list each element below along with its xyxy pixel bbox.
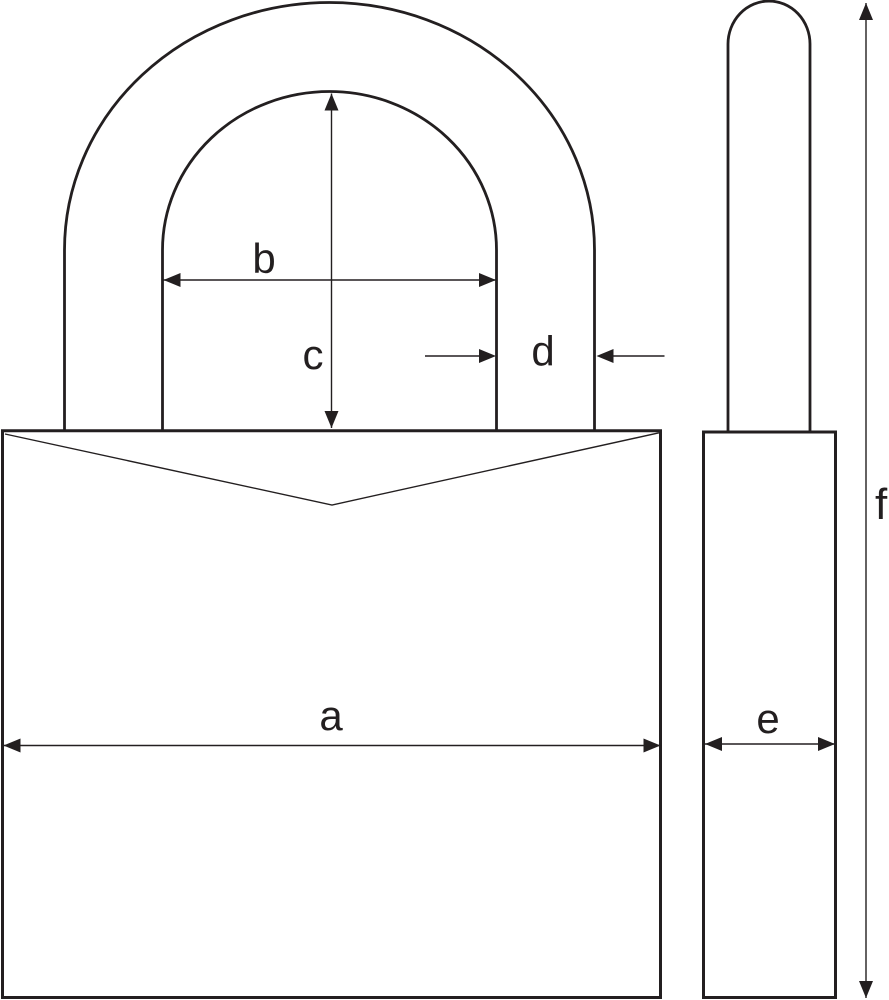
svg-text:d: d [531,328,554,375]
svg-text:f: f [875,480,888,529]
svg-text:e: e [756,695,779,742]
svg-text:b: b [252,235,275,282]
svg-text:c: c [303,331,324,378]
svg-text:a: a [319,692,343,739]
